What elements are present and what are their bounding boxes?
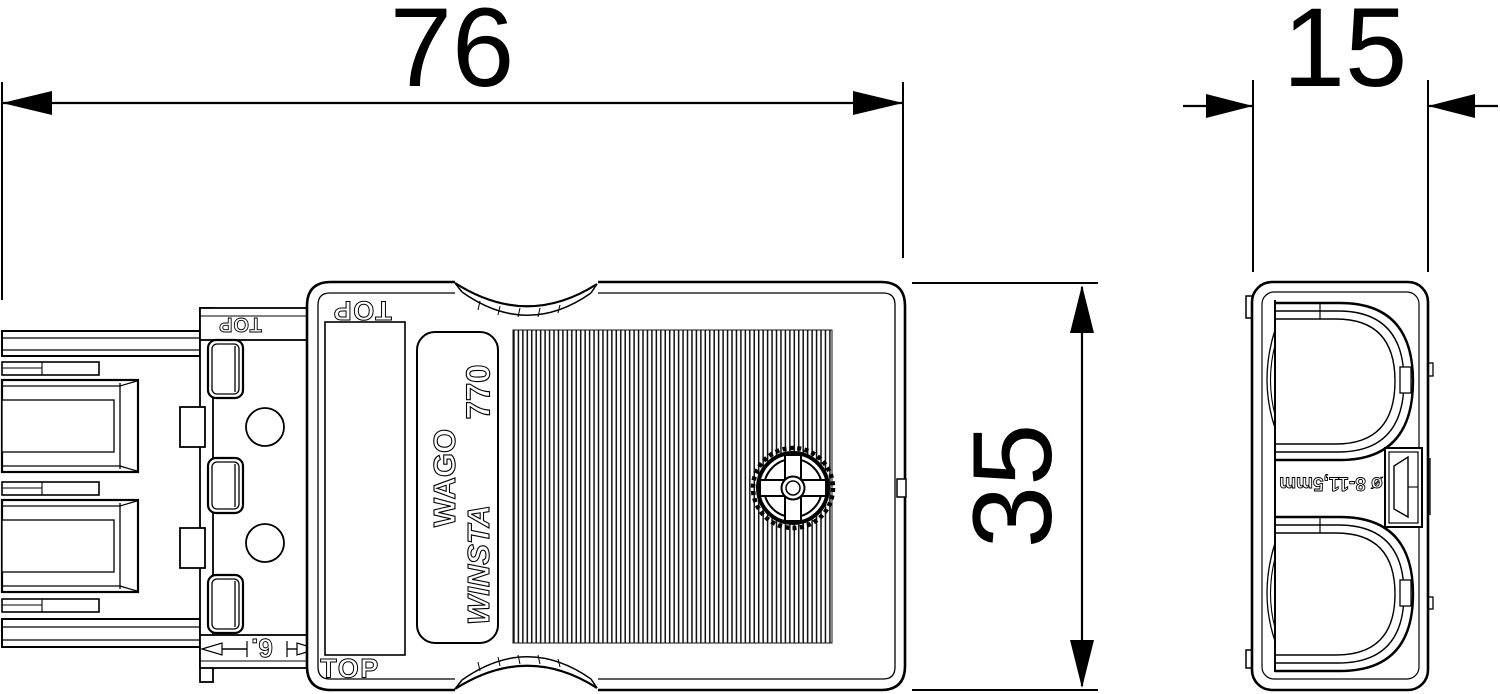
plug-flange: TOP 6. bbox=[180, 308, 317, 682]
width-dimension: 76 bbox=[2, 0, 903, 300]
height-dimension-value: 35 bbox=[950, 424, 1075, 549]
label-window bbox=[325, 322, 405, 655]
brand-logo-text: WAGO bbox=[427, 429, 462, 527]
width-dimension-value: 76 bbox=[390, 0, 515, 110]
plug-bottom-arm bbox=[2, 619, 200, 647]
flange-hole-1 bbox=[246, 408, 284, 446]
flange-hole-2 bbox=[246, 524, 284, 562]
knob-center bbox=[782, 477, 805, 500]
flange-boss-1 bbox=[180, 407, 205, 447]
drawing-canvas: 76 15 35 bbox=[0, 0, 1500, 694]
flange-slot-2 bbox=[208, 458, 243, 513]
flange-top-marking: TOP bbox=[218, 313, 262, 335]
flange-slot-3 bbox=[208, 575, 243, 633]
connector-technical-drawing: 76 15 35 bbox=[0, 0, 1500, 694]
arrowhead-right-icon bbox=[1428, 94, 1475, 118]
arrowhead-left-icon bbox=[2, 91, 52, 115]
plug-front-view bbox=[2, 331, 200, 647]
contact-blade-1 bbox=[2, 362, 99, 375]
contact-blade-2 bbox=[2, 482, 99, 495]
connector-body-front-view: TOP TOP 770 WAGO WINSTA bbox=[307, 282, 906, 690]
body-top-marking-upper: TOP bbox=[332, 296, 392, 326]
series-marking: WINSTA bbox=[461, 505, 496, 625]
arrowhead-bottom-icon bbox=[1070, 640, 1094, 688]
flange-slot-1 bbox=[208, 340, 243, 398]
brand-panel: 770 WAGO WINSTA bbox=[417, 332, 498, 643]
model-marking: 770 bbox=[460, 364, 497, 419]
flange-dimension-value: 6. bbox=[251, 633, 273, 663]
side-view: ø 8-11,5mm bbox=[1246, 282, 1433, 690]
contact-blade-3 bbox=[2, 599, 99, 612]
flange-boss-2 bbox=[180, 528, 205, 568]
arrowhead-top-icon bbox=[1070, 285, 1094, 333]
arrowhead-left-icon bbox=[1206, 94, 1253, 118]
height-dimension: 35 bbox=[912, 283, 1098, 690]
side-width-dimension: 15 bbox=[1183, 0, 1498, 272]
body-edge-latch bbox=[897, 479, 906, 497]
side-width-dimension-value: 15 bbox=[1283, 0, 1408, 110]
arrowhead-right-icon bbox=[853, 91, 903, 115]
plug-top-arm bbox=[2, 331, 200, 356]
body-top-marking-lower: TOP bbox=[320, 653, 380, 683]
cable-range-marking: ø 8-11,5mm bbox=[1279, 472, 1383, 493]
pin-housing-block-2 bbox=[2, 500, 138, 592]
pin-housing-block-1 bbox=[2, 380, 138, 472]
